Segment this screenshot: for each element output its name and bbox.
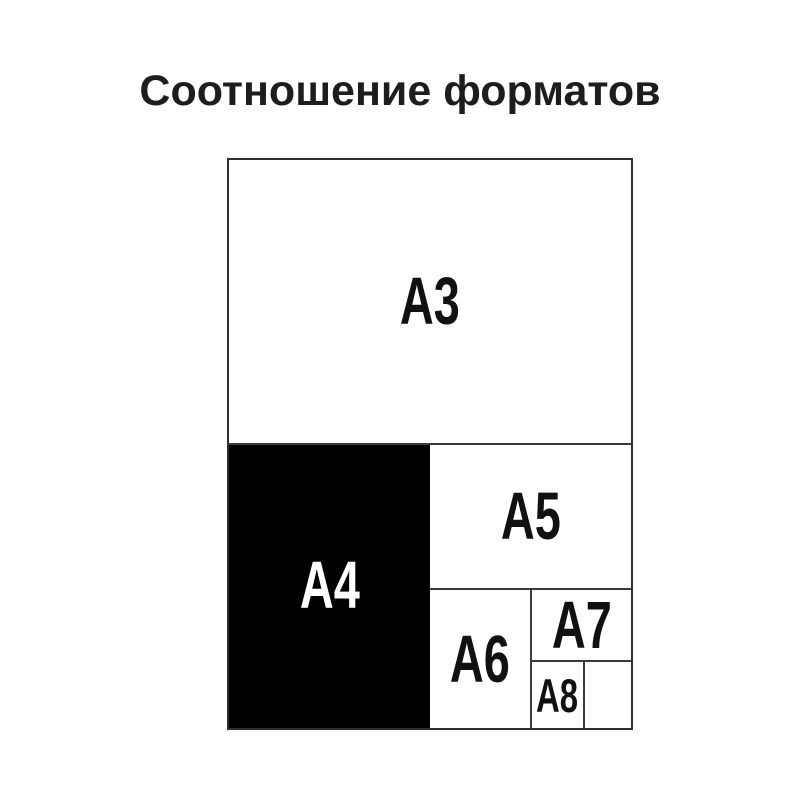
divider-a8-right <box>583 660 585 728</box>
format-label-a3: A3 <box>400 268 460 335</box>
format-label-a7: A7 <box>552 592 612 659</box>
format-ratio-diagram: A3 A4 A5 A6 A7 A8 <box>227 158 633 730</box>
divider-a7-bottom <box>530 660 631 662</box>
page-title: Соотношение форматов <box>0 68 800 114</box>
divider-a6-right <box>530 588 532 728</box>
format-label-a6: A6 <box>450 626 510 693</box>
format-cell-remainder <box>585 662 631 728</box>
format-cell-a5: A5 <box>430 445 631 588</box>
format-cell-a3: A3 <box>229 160 631 443</box>
format-cell-a8: A8 <box>532 662 583 728</box>
format-label-a4: A4 <box>300 552 360 619</box>
format-cell-a4: A4 <box>229 443 430 728</box>
format-cell-a7: A7 <box>532 590 631 660</box>
divider-a3-bottom <box>229 443 631 445</box>
format-cell-a6: A6 <box>430 590 530 728</box>
format-label-a5: A5 <box>501 483 561 550</box>
format-label-a8: A8 <box>536 672 578 719</box>
